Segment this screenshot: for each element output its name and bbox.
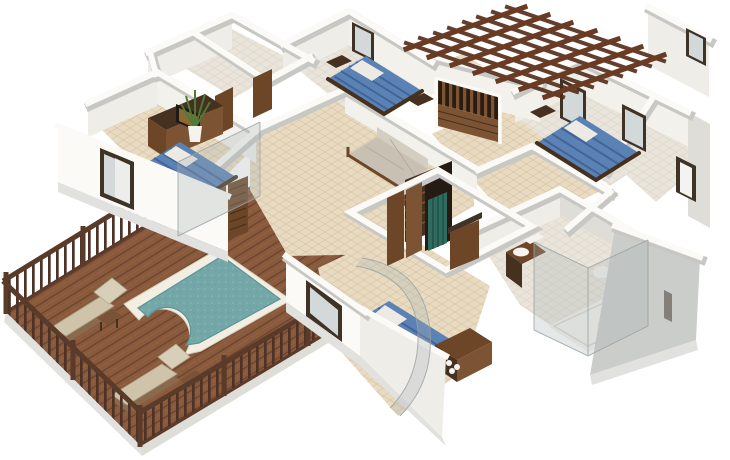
decor-ball: [449, 368, 455, 374]
window-reveal: [115, 158, 130, 204]
glass-door-handle-recess: [664, 290, 672, 322]
louvre-door-leaf-1: [387, 190, 404, 266]
decor-ball: [446, 360, 452, 366]
louvre-door-leaf-2: [406, 182, 422, 258]
decor-ball: [454, 364, 460, 370]
plant-pot: [188, 126, 202, 142]
floorplan-svg: [0, 0, 730, 460]
floorplan-render: [0, 0, 730, 460]
